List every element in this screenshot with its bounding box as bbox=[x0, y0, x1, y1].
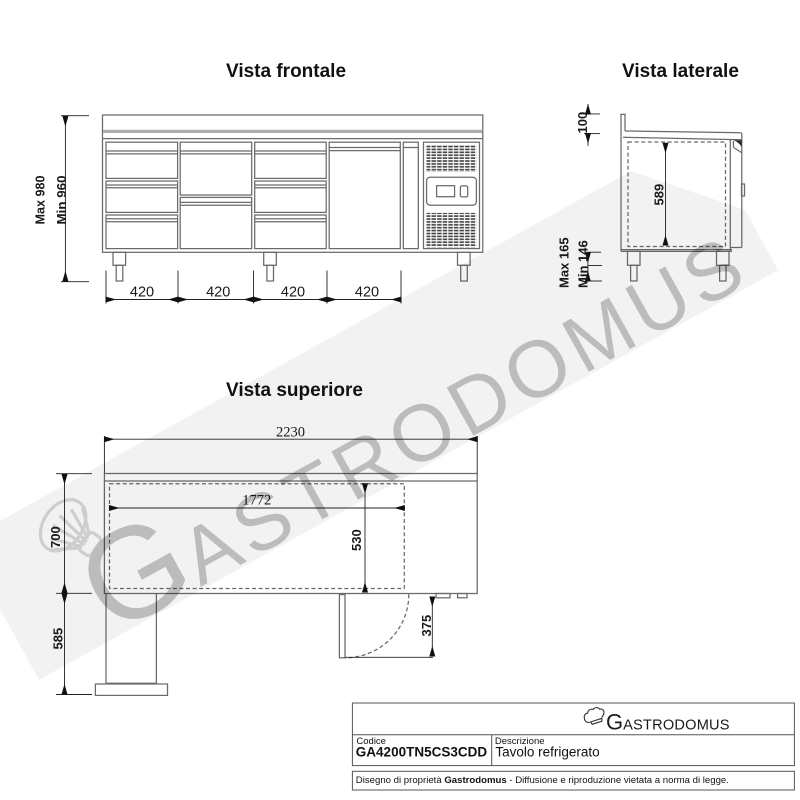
svg-text:Vista laterale: Vista laterale bbox=[622, 61, 739, 82]
svg-text:Min 960: Min 960 bbox=[54, 176, 69, 225]
svg-text:100: 100 bbox=[575, 112, 590, 134]
svg-text:420: 420 bbox=[206, 285, 230, 301]
svg-text:GA4200TN5CS3CDD: GA4200TN5CS3CDD bbox=[356, 745, 488, 760]
svg-text:420: 420 bbox=[281, 285, 305, 301]
svg-text:Max 980: Max 980 bbox=[33, 176, 48, 225]
svg-text:Disegno di proprietà Gastrodom: Disegno di proprietà Gastrodomus - Diffu… bbox=[356, 775, 729, 786]
svg-text:420: 420 bbox=[130, 285, 154, 301]
svg-text:375: 375 bbox=[419, 615, 434, 637]
svg-text:420: 420 bbox=[355, 285, 379, 301]
svg-text:Tavolo refrigerato: Tavolo refrigerato bbox=[495, 745, 599, 760]
svg-text:Vista frontale: Vista frontale bbox=[226, 61, 346, 82]
svg-text:530: 530 bbox=[349, 529, 364, 551]
